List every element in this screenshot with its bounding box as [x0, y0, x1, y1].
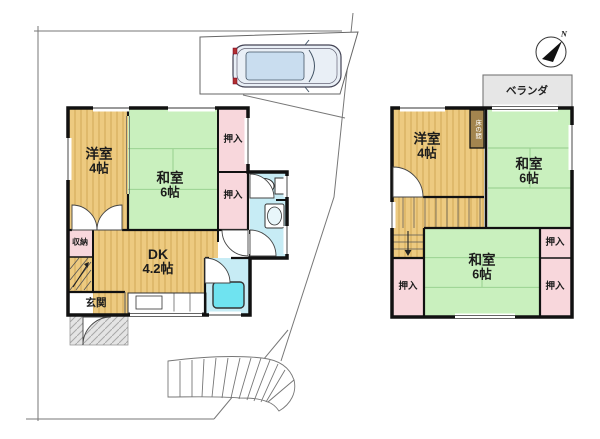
1f-dk-name: DK: [142, 247, 173, 262]
label-2f-closet-right-bottom: 押入: [545, 282, 564, 292]
parking-space: [200, 32, 358, 94]
1f-dk-size: 4.2帖: [142, 263, 173, 277]
compass-icon: [536, 37, 566, 67]
label-1f-western-room: 洋室 4帖: [86, 148, 113, 177]
label-compass-north: N: [561, 29, 567, 38]
floor-plan-canvas: 洋室 4帖 和室 6帖 DK 4.2帖 押入 押入 収納 玄関 洋室 4帖 和室…: [0, 0, 600, 439]
label-1f-closet-bottom: 押入: [223, 191, 242, 201]
label-2f-closet-right-top: 押入: [545, 238, 564, 248]
2f-stairs-upper-run: [392, 197, 484, 228]
exterior-stairs: [168, 357, 295, 411]
2f-japanese-room-lower-name: 和室: [469, 254, 496, 269]
1f-japanese-room-name: 和室: [157, 172, 184, 187]
car-icon: [233, 40, 341, 92]
label-1f-japanese-room: 和室 6帖: [157, 172, 184, 201]
floor-plan-drawing: [0, 0, 600, 439]
boundary-parking-diagonal: [243, 95, 345, 118]
label-2f-japanese-room-upper: 和室 6帖: [516, 158, 543, 187]
label-2f-closet-left: 押入: [398, 282, 417, 292]
2f-western-room-size: 4帖: [414, 148, 441, 162]
2f-western-room-name: 洋室: [414, 133, 441, 148]
2f-japanese-room-upper-size: 6帖: [516, 173, 543, 187]
kitchen-counter: [128, 293, 206, 313]
2f-japanese-room-upper-name: 和室: [516, 158, 543, 173]
sink-icon: [265, 204, 284, 228]
1f-western-room-size: 4帖: [86, 163, 113, 177]
label-1f-entrance: 玄関: [86, 298, 107, 310]
label-2f-tokonoma: 床の間: [473, 119, 480, 139]
label-2f-western-room: 洋室 4帖: [414, 133, 441, 162]
label-1f-closet-top: 押入: [223, 135, 242, 145]
label-1f-dk: DK 4.2帖: [142, 247, 173, 277]
1f-western-room-name: 洋室: [86, 148, 113, 163]
label-2f-japanese-room-lower: 和室 6帖: [469, 254, 496, 283]
1f-japanese-room-size: 6帖: [157, 187, 184, 201]
bathtub-icon: [213, 282, 244, 308]
2f-japanese-room-lower-size: 6帖: [469, 269, 496, 283]
label-1f-storage: 収納: [72, 239, 88, 248]
label-2f-veranda: ベランダ: [506, 86, 548, 98]
